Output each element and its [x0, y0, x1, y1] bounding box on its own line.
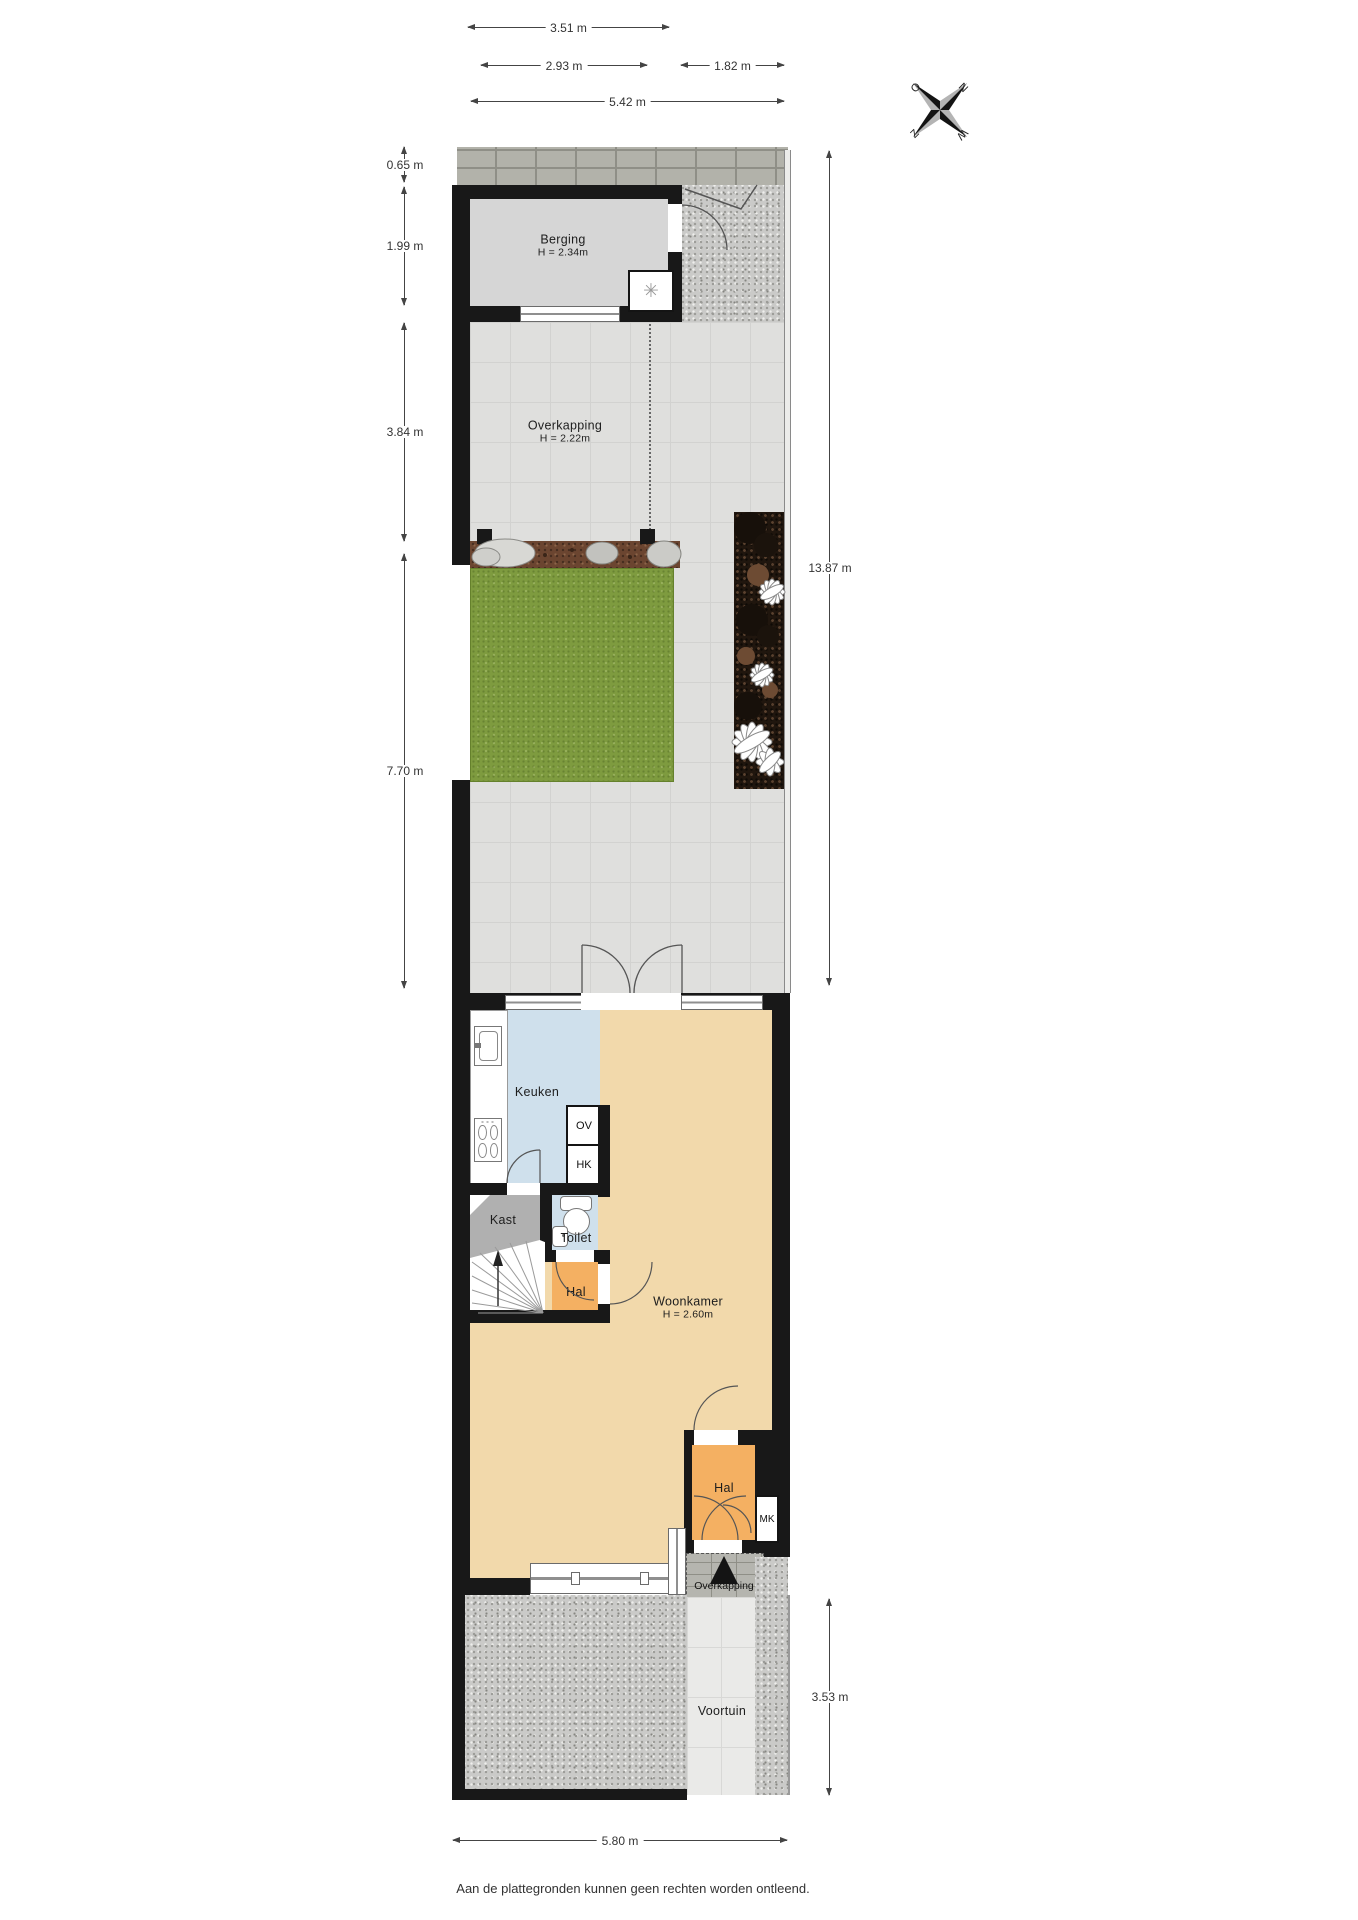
- floorplan-canvas: 3.51 m 2.93 m 1.82 m 5.42 m 0.65 m 1.99 …: [0, 0, 1358, 1920]
- dimension-label: 3.53 m: [807, 1691, 854, 1703]
- compass-letter-north: N: [956, 81, 970, 95]
- entry-porch-label: Overkapping: [694, 1580, 754, 1592]
- wall-voortuin-bottom: [452, 1789, 687, 1800]
- wall-house-right: [772, 993, 790, 1430]
- ventilation-unit: ✳: [628, 270, 674, 312]
- keuken-label: Keuken: [515, 1086, 559, 1100]
- window-frame-mark: [640, 1572, 649, 1585]
- dimension-label: 3.84 m: [382, 426, 429, 438]
- window-front: [530, 1563, 680, 1594]
- entry-hal-label: Hal: [714, 1482, 734, 1496]
- dimension-label: 2.93 m: [541, 60, 588, 72]
- arrow-down-icon: [401, 298, 407, 306]
- compass-arm: [913, 110, 940, 137]
- appliance-cabinet: OV HK: [566, 1105, 602, 1185]
- compass-letter-west: W: [954, 126, 970, 142]
- pergola-post-right: [640, 529, 655, 544]
- room-height: H = 2.60m: [653, 1309, 723, 1321]
- dimension-left-2: 1.99 m: [400, 186, 410, 306]
- arrow-up-icon: [401, 146, 407, 154]
- compass-arm: [940, 83, 967, 110]
- cooktop-controls: [480, 1121, 496, 1123]
- patio-doors-opening: [581, 993, 681, 1010]
- meter-cabinet-label: MK: [757, 1497, 777, 1541]
- toilet-door-opening: [556, 1250, 594, 1262]
- arrow-up-icon: [826, 1598, 832, 1606]
- window-rear-right: [681, 995, 763, 1010]
- arrow-left-icon: [480, 62, 488, 68]
- arrow-up-icon: [401, 553, 407, 561]
- voortuin-gravel-right: [755, 1557, 788, 1795]
- cooktop-burners: [478, 1125, 498, 1158]
- arrow-down-icon: [401, 534, 407, 542]
- compass-arm: [913, 83, 940, 110]
- faucet-icon: [475, 1043, 481, 1048]
- dimension-label: 13.87 m: [803, 562, 856, 574]
- arrow-up-icon: [401, 322, 407, 330]
- compass-arm: [913, 83, 940, 110]
- arrow-left-icon: [470, 98, 478, 104]
- voortuin-right-line: [788, 1595, 790, 1795]
- window-frame-mark: [571, 1572, 580, 1585]
- rear-paved-strip: [457, 147, 788, 185]
- entryhal-door-opening: [694, 1430, 738, 1445]
- room-height: H = 2.22m: [528, 433, 602, 445]
- arrow-down-icon: [826, 1788, 832, 1796]
- room-height: H = 2.34m: [538, 247, 589, 259]
- dimension-top-1: 3.51 m: [467, 23, 670, 33]
- dimension-label: 0.65 m: [382, 159, 429, 171]
- room-name: Overkapping: [528, 419, 602, 433]
- woonkamer-label: Woonkamer H = 2.60m: [653, 1295, 723, 1320]
- arrow-right-icon: [662, 24, 670, 30]
- planter-border: [470, 541, 680, 568]
- kast-label: Kast: [490, 1214, 516, 1228]
- dimension-label: 7.70 m: [382, 765, 429, 777]
- dimension-right-1: 13.87 m: [825, 150, 835, 986]
- canopy-edge-dotted-line: [649, 324, 651, 538]
- arrow-right-icon: [640, 62, 648, 68]
- wall-voortuin-left: [452, 1593, 465, 1800]
- wall-garden-left-upper: [452, 322, 470, 565]
- dimension-top-3: 1.82 m: [680, 61, 785, 71]
- overkapping-garden-label: Overkapping H = 2.22m: [528, 419, 602, 444]
- toilet-label: Toilet: [561, 1232, 592, 1246]
- dimension-left-3: 3.84 m: [400, 322, 410, 542]
- wall-garden-left-lower: [452, 780, 470, 995]
- window-front-corner: [668, 1528, 686, 1595]
- lawn: [470, 568, 674, 782]
- arrow-right-icon: [777, 98, 785, 104]
- dimension-label: 3.51 m: [545, 22, 592, 34]
- room-name: Woonkamer: [653, 1295, 723, 1309]
- arrow-down-icon: [401, 175, 407, 183]
- arrow-down-icon: [826, 978, 832, 986]
- compass-letter-south: Z: [908, 127, 921, 140]
- dimension-right-2: 3.53 m: [825, 1598, 835, 1796]
- arrow-right-icon: [780, 1837, 788, 1843]
- berging-label: Berging H = 2.34m: [538, 233, 589, 258]
- arrow-left-icon: [680, 62, 688, 68]
- compass-arm: [940, 110, 967, 137]
- voortuin-gravel: [465, 1595, 687, 1793]
- sink-icon: [474, 1026, 502, 1066]
- berging-door-opening: [668, 204, 682, 252]
- meter-cabinet: MK: [755, 1495, 779, 1543]
- wall-house-left: [452, 993, 470, 1595]
- flower-bed: [734, 512, 786, 789]
- voortuin-label: Voortuin: [698, 1705, 746, 1719]
- compass-letter-east: O: [909, 80, 924, 95]
- dimension-left-4: 7.70 m: [400, 553, 410, 989]
- front-path: [687, 1597, 755, 1795]
- compass-rose: O N Z W: [908, 80, 970, 142]
- dimension-top-2: 2.93 m: [480, 61, 648, 71]
- hal-mid-label: Hal: [566, 1286, 586, 1300]
- entry-porch: [686, 1553, 764, 1599]
- arrow-left-icon: [452, 1837, 460, 1843]
- arrow-down-icon: [401, 981, 407, 989]
- compass-arm: [913, 110, 940, 137]
- vent-fan-icon: ✳: [643, 280, 659, 303]
- side-path-gravel: [680, 185, 788, 325]
- arrow-up-icon: [401, 186, 407, 194]
- dimension-left-1: 0.65 m: [400, 146, 410, 183]
- fence-right: [784, 150, 791, 993]
- arrow-left-icon: [467, 24, 475, 30]
- arrow-right-icon: [777, 62, 785, 68]
- compass-arm: [940, 110, 967, 137]
- room-name: Berging: [538, 233, 589, 247]
- berging-window: [520, 306, 620, 322]
- hal-door-opening: [598, 1264, 610, 1304]
- dimension-label: 1.82 m: [709, 60, 756, 72]
- dimension-label: 1.99 m: [382, 240, 429, 252]
- pergola-post-left: [477, 529, 492, 544]
- compass-arm: [940, 83, 967, 110]
- arrow-up-icon: [826, 150, 832, 158]
- wall-stairs-bottom: [452, 1310, 610, 1323]
- dimension-bottom-1: 5.80 m: [452, 1836, 788, 1846]
- dimension-top-4: 5.42 m: [470, 97, 785, 107]
- oven-cabinet-label: OV: [568, 1107, 600, 1144]
- window-rear-left: [505, 995, 583, 1010]
- sink-basin: [479, 1031, 498, 1061]
- footer-disclaimer: Aan de plattegronden kunnen geen rechten…: [456, 1881, 809, 1896]
- boiler-cabinet-label: HK: [568, 1144, 600, 1183]
- cooktop-icon: [474, 1118, 502, 1162]
- dimension-label: 5.42 m: [604, 96, 651, 108]
- dimension-label: 5.80 m: [597, 1835, 644, 1847]
- kitchen-door-opening: [507, 1183, 540, 1195]
